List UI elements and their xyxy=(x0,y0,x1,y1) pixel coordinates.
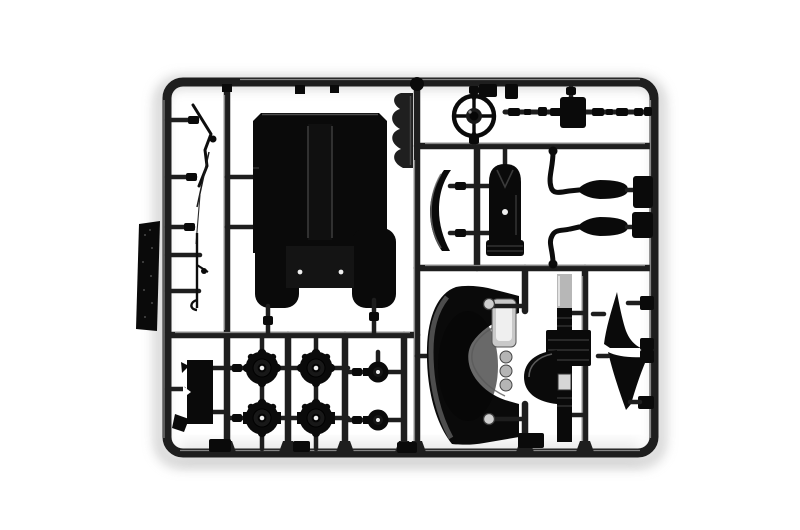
bushing-runner xyxy=(508,84,652,128)
triangular-bracket-upper xyxy=(593,292,654,350)
scalloped-bracket-part xyxy=(392,93,413,168)
dashboard-fender-part xyxy=(417,286,525,445)
left-rail-stubs xyxy=(167,116,200,389)
wheel-hub-part xyxy=(243,349,281,387)
textured-plate-part xyxy=(136,221,160,331)
sprue-photo xyxy=(0,0,800,530)
small-hub-column xyxy=(348,352,404,431)
exhaust-muffler-upper xyxy=(549,147,654,209)
chassis-member-part xyxy=(524,274,591,442)
small-hub-part xyxy=(363,410,389,431)
photo-canvas xyxy=(0,0,800,530)
cab-floor-panel-part xyxy=(227,113,396,333)
axle-bracket-part xyxy=(172,360,227,432)
ball-pin xyxy=(410,77,424,91)
wheel-hub-part xyxy=(297,349,335,387)
lever-rod-part xyxy=(191,233,208,310)
triangular-bracket-lower xyxy=(598,350,654,410)
exhaust-muffler-lower xyxy=(549,212,654,269)
cylindrical-tank-part xyxy=(486,148,524,256)
small-hub-part xyxy=(363,362,389,383)
